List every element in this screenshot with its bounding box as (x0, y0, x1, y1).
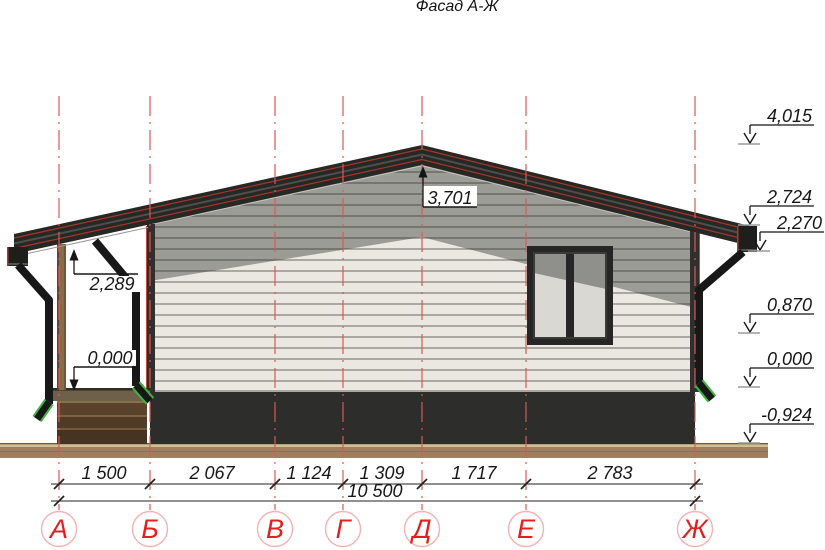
dim-v-g: 1 124 (286, 463, 331, 483)
axis-bubbles: А Б В Г Д Е Ж (42, 512, 713, 547)
downspout-left-outer (18, 265, 49, 404)
elevation-mark-ground-level: -0,924 (738, 405, 814, 443)
up-arrow-icon (70, 249, 79, 261)
window (527, 246, 613, 345)
axis-bubble-b: Б (133, 512, 168, 547)
downspout-right (699, 252, 743, 384)
porch-floor-elevation-value: 0,000 (87, 348, 132, 368)
axis-label-v: В (266, 514, 284, 544)
step-1 (57, 401, 147, 415)
axis-label-zh: Ж (681, 514, 710, 544)
elevation-mark-porch-floor: 0,000 (70, 348, 137, 391)
dim-g-d: 1 309 (359, 463, 404, 483)
axis-bubble-zh: Ж (678, 512, 713, 547)
porch-post-edge (64, 244, 66, 390)
elevation-value-1: 2,724 (766, 187, 812, 207)
gutter-right (737, 226, 757, 252)
elevation-mark-gutter-bottom: 2,270 (748, 213, 824, 251)
step-2-edge (57, 415, 147, 417)
facade-drawing-sheet: 3,701 2,289 0,000 4,015 2,724 (0, 0, 825, 550)
dimension-rows: 1 500 2 067 1 124 1 309 1 717 2 783 10 5… (51, 463, 703, 506)
drawing-title: Фасад А-Ж (416, 0, 500, 15)
level-arrow-icon (744, 322, 756, 332)
step-3-edge (57, 428, 147, 430)
drain-elbow-left (37, 402, 49, 419)
axis-bubble-a: А (42, 512, 77, 547)
dim-a-b: 1 500 (81, 463, 126, 483)
dim-e-zh: 2 783 (586, 463, 632, 483)
ridge-elevation-value: 3,701 (427, 188, 472, 208)
dim-b-v: 2 067 (188, 463, 235, 483)
axis-label-g: Г (336, 514, 353, 544)
elevation-value-3: 0,870 (767, 295, 812, 315)
window-mullion (566, 253, 574, 338)
dim-total: 10 500 (347, 481, 402, 501)
corner-trim-left (147, 224, 155, 392)
gutter-left-lip (7, 263, 28, 265)
facade-drawing: 3,701 2,289 0,000 4,015 2,724 (0, 0, 825, 550)
elevation-value-0: 4,015 (767, 106, 813, 126)
step-1-edge (57, 401, 147, 403)
elevation-value-5: -0,924 (761, 405, 812, 425)
elevation-value-4: 0,000 (767, 349, 812, 369)
axis-label-a: А (48, 514, 68, 544)
level-arrow-icon (744, 214, 756, 224)
axis-bubble-g: Г (326, 512, 361, 547)
axis-bubble-d: Д (405, 512, 440, 547)
ground-streak (0, 451, 768, 452)
elevation-mark-window-sill: 0,870 (738, 295, 814, 333)
elevation-value-2: 2,270 (776, 213, 822, 233)
elevation-marks-right: 4,015 2,724 2,270 0,870 (738, 106, 824, 443)
axis-bubble-v: В (258, 512, 293, 547)
step-3 (57, 428, 147, 444)
axis-bubble-e: Е (509, 512, 544, 547)
axis-label-e: Е (517, 514, 536, 544)
axis-label-d: Д (409, 514, 431, 544)
dim-d-e: 1 717 (451, 463, 497, 483)
porch-ceiling-elevation-value: 2,289 (88, 274, 134, 294)
elevation-mark-zero-level: 0,000 (738, 349, 814, 387)
level-arrow-icon (744, 133, 756, 143)
ground-line (0, 443, 768, 458)
level-arrow-icon (744, 432, 756, 442)
level-arrow-icon (744, 376, 756, 386)
axis-label-b: Б (141, 514, 159, 544)
ground-soil-band (0, 447, 768, 458)
elevation-mark-ridge-top: 4,015 (738, 106, 814, 144)
